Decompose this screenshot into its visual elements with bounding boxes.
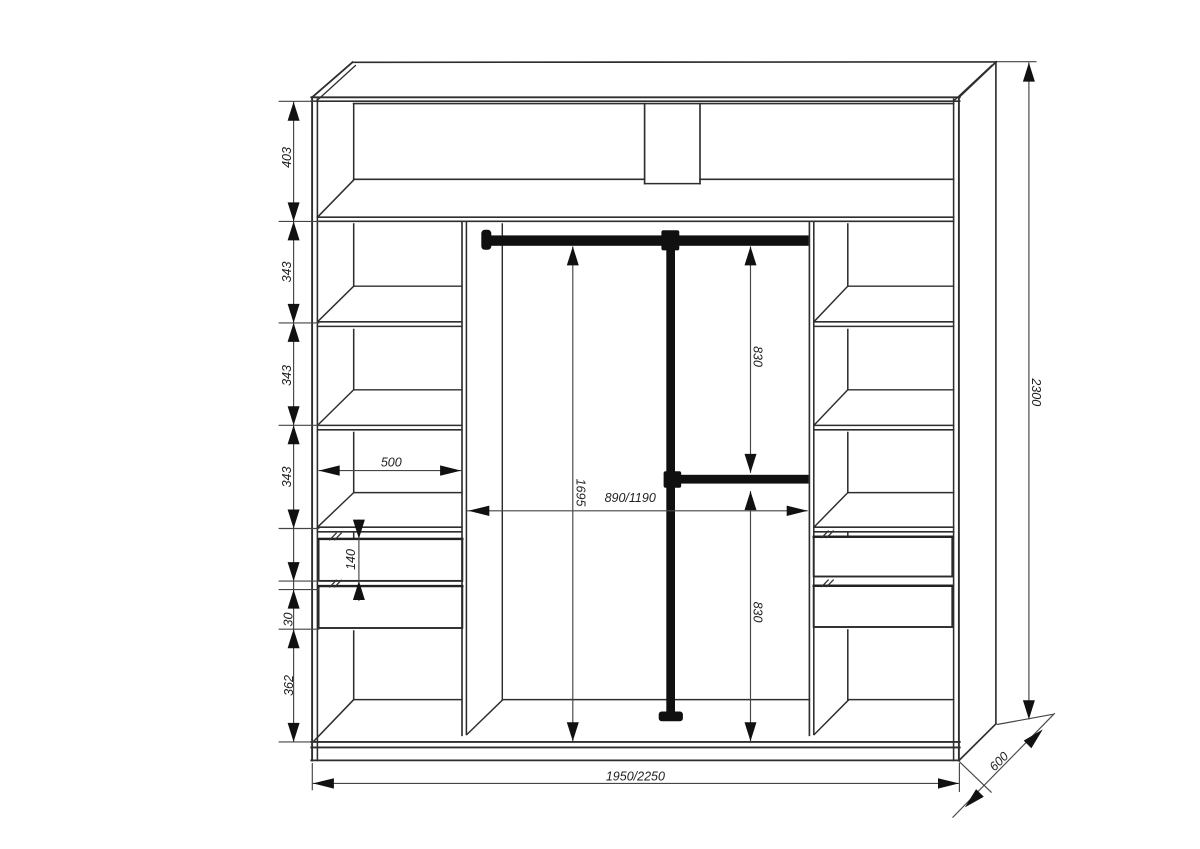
- svg-text:343: 343: [280, 467, 294, 488]
- svg-text:830: 830: [750, 602, 764, 623]
- svg-text:500: 500: [381, 456, 402, 470]
- svg-text:830: 830: [750, 346, 764, 367]
- svg-text:140: 140: [344, 549, 358, 570]
- svg-text:403: 403: [280, 147, 294, 168]
- svg-text:343: 343: [280, 365, 294, 386]
- svg-text:343: 343: [280, 262, 294, 283]
- svg-text:30: 30: [281, 613, 295, 627]
- svg-text:890/1190: 890/1190: [605, 491, 656, 505]
- svg-text:2300: 2300: [1029, 377, 1043, 406]
- svg-text:362: 362: [282, 675, 296, 696]
- svg-text:1695: 1695: [573, 479, 587, 507]
- svg-text:1950/2250: 1950/2250: [606, 769, 665, 783]
